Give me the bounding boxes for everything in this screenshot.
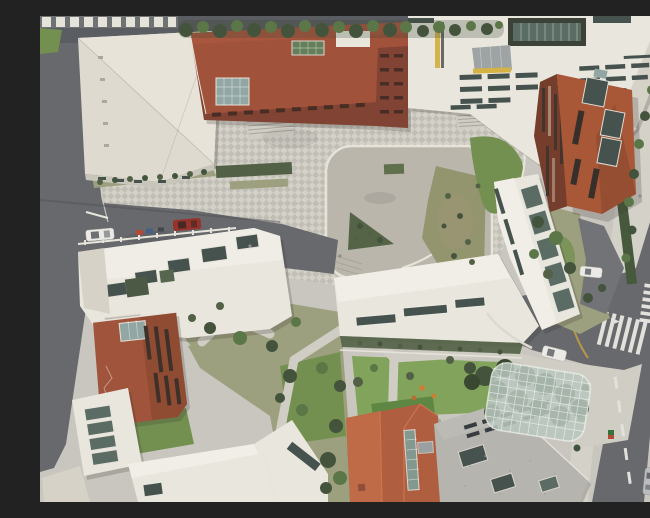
atmospheric-haze [40, 16, 650, 502]
aerial-photo [40, 16, 650, 502]
aerial-photo-canvas [40, 16, 650, 502]
